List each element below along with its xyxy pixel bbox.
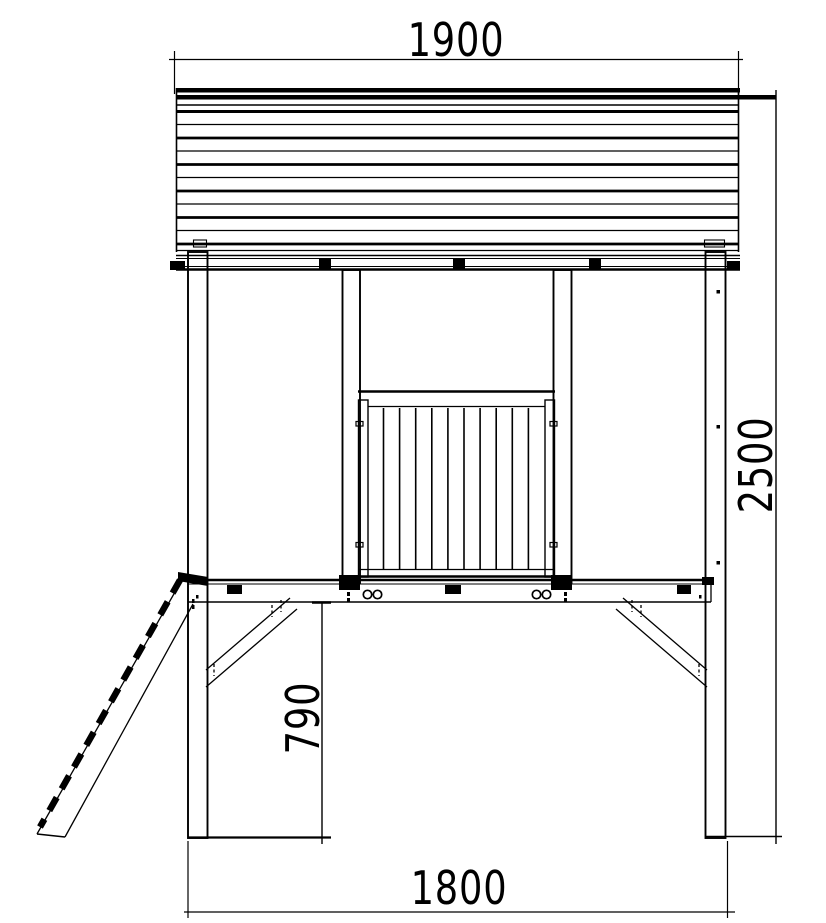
bracket-corner-left	[170, 261, 185, 270]
dimension-roof-width-label: 1900	[408, 17, 505, 63]
bracket-corner-right	[727, 261, 740, 270]
ladder-stringer-inner	[65, 604, 193, 837]
ladder-treads	[40, 580, 180, 827]
post-left-outer	[188, 252, 208, 838]
roof-plank-lines	[177, 105, 738, 251]
roof	[176, 88, 776, 252]
railing-balusters	[384, 408, 529, 569]
railing	[356, 392, 557, 578]
posts	[188, 252, 726, 838]
roof-fascia-band	[176, 95, 776, 100]
dimension-total-height-label: 2500	[733, 417, 779, 514]
ladder	[37, 572, 208, 837]
brace-left	[206, 598, 297, 687]
beam-brackets	[170, 258, 740, 270]
bracket-mid-3	[589, 258, 601, 269]
platform	[179, 575, 714, 602]
railing-hinge-marks	[356, 422, 557, 548]
bracket-mid-2	[453, 258, 465, 269]
dimension-platform-height-label: 790	[280, 682, 326, 755]
ladder-foot	[37, 834, 65, 837]
post-screw-dots	[717, 290, 721, 565]
ground-lines	[188, 837, 782, 838]
braces	[206, 598, 707, 687]
post-right-outer	[706, 252, 726, 838]
technical-drawing-canvas: 1900 2500 790 1800	[0, 0, 826, 923]
brace-right	[616, 598, 707, 687]
playhouse-elevation-drawing	[0, 0, 826, 923]
roof-ridge-band	[176, 88, 740, 93]
dimension-base-width-label: 1800	[411, 865, 508, 911]
ladder-stringer-outer	[37, 578, 183, 834]
bracket-mid-1	[319, 258, 331, 269]
